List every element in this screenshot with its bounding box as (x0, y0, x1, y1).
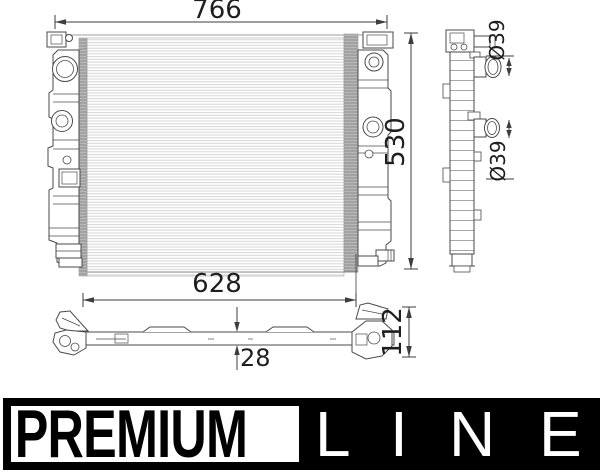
radiator-bottom-view (53, 303, 394, 359)
radiator-technical-drawing-page: 766 530 628 28 112 Ø39 Ø39 PREMIUM L I N… (0, 0, 600, 472)
dim-label-port-diameter-top: Ø39 (471, 12, 523, 68)
premium-line-logo: PREMIUM L I N E (3, 398, 600, 470)
dim-label-overall-width: 766 (178, 0, 256, 26)
premium-logo-box: PREMIUM (11, 406, 299, 462)
dim-label-bottom-thickness: 28 (240, 345, 271, 373)
dim-label-port-diameter-bottom: Ø39 (472, 133, 524, 189)
dim-label-overall-height: 530 (371, 115, 423, 169)
line-logo-letter-e: E (539, 400, 582, 468)
line-logo-letter-l: L (315, 400, 351, 468)
line-logo-letter-n: N (449, 400, 495, 468)
dim-label-bottom-height: 112 (368, 305, 420, 359)
premium-logo-label: PREMIUM (11, 406, 247, 462)
line-logo-letter-i: I (390, 400, 408, 468)
dim-label-bottom-width: 628 (179, 270, 255, 300)
radiator-front-view (47, 32, 394, 276)
